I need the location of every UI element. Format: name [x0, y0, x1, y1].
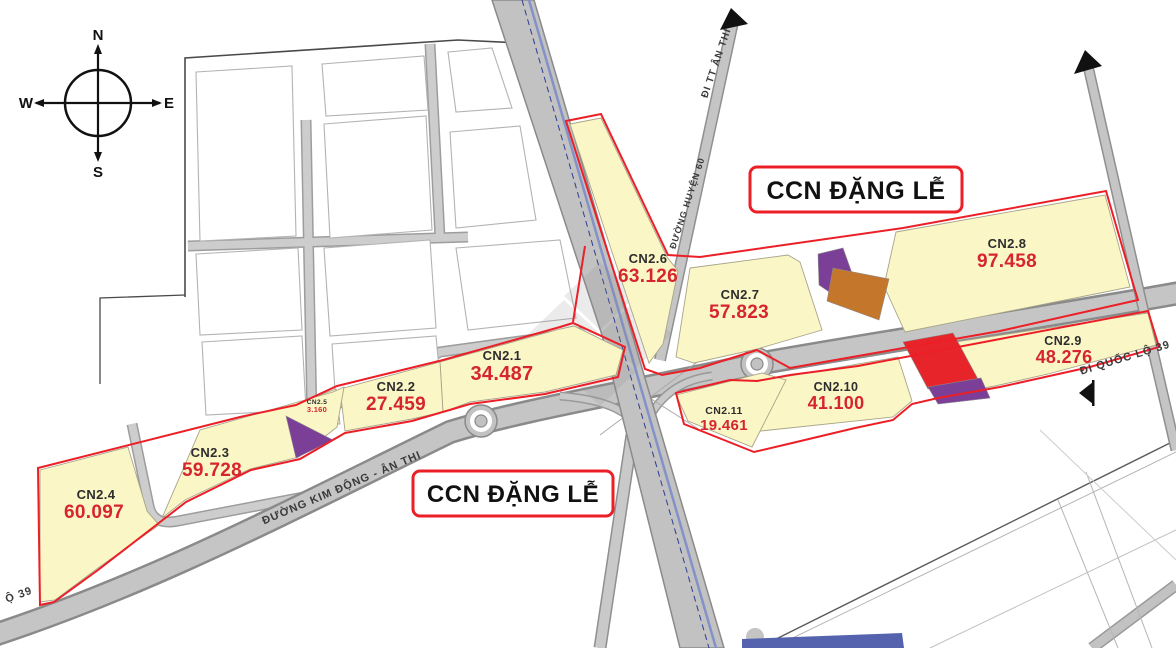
- parcel-cn2-2-label: CN2.2: [377, 379, 416, 394]
- parcel-cn2-1-area: 34.487: [471, 363, 534, 385]
- parcel-cn2-10-label: CN2.10: [814, 380, 859, 394]
- title-box-bottom-text: CCN ĐẶNG LỄ: [427, 479, 599, 508]
- parcel-cn2-8-label: CN2.8: [988, 236, 1027, 251]
- bottom-right-parcels: [742, 430, 1176, 648]
- arrow-to-an-thi-icon: [720, 8, 748, 30]
- orange-lot: [827, 268, 889, 320]
- parcel-cn2-10-area: 41.100: [808, 393, 865, 413]
- flag-marker-icon: [1079, 380, 1095, 406]
- parcel-cn2-6-area: 63.126: [618, 266, 678, 287]
- parcel-cn2-9-label: CN2.9: [1044, 334, 1081, 348]
- existing-area-boundary-notch: [100, 295, 185, 384]
- compass-north-label: N: [93, 27, 104, 44]
- compass-south-label: S: [93, 164, 103, 181]
- parcel-cn2-11-area: 19.461: [700, 417, 748, 434]
- title-box-top-text: CCN ĐẶNG LỄ: [766, 175, 945, 205]
- compass-west-label: W: [19, 95, 34, 112]
- parcel-cn2-1-label: CN2.1: [483, 348, 522, 363]
- parcel-cn2-8-area: 97.458: [977, 251, 1037, 272]
- parcel-cn2-2-area: 27.459: [366, 394, 426, 415]
- blue-strip: [742, 633, 904, 648]
- parcel-cn2-3-area: 59.728: [182, 460, 242, 481]
- parcel-cn2-5-area: 3.160: [307, 405, 327, 414]
- master-plan-map: CN2.1 34.487 CN2.2 27.459 CN2.3 59.728 C…: [0, 0, 1176, 648]
- parcel-cn2-11-label: CN2.11: [705, 405, 742, 417]
- compass-east-label: E: [164, 95, 174, 112]
- parcel-cn2-3-label: CN2.3: [191, 445, 230, 460]
- road-label-quoc-lo-39-partial: Ộ 39: [3, 584, 34, 606]
- compass-rose: N S W E: [19, 27, 174, 181]
- parcel-cn2-7-area: 57.823: [709, 302, 769, 323]
- map-canvas: CN2.1 34.487 CN2.2 27.459 CN2.3 59.728 C…: [0, 0, 1176, 648]
- parcel-cn2-7-label: CN2.7: [721, 287, 760, 302]
- roundabout-west: [465, 405, 497, 437]
- parcel-cn2-6-label: CN2.6: [629, 251, 668, 266]
- branch-road: [600, 435, 632, 648]
- existing-area: [100, 40, 585, 522]
- compass-cross: [36, 48, 160, 158]
- parcel-cn2-4-label: CN2.4: [77, 487, 116, 502]
- parcel-cn2-4-area: 60.097: [64, 502, 124, 523]
